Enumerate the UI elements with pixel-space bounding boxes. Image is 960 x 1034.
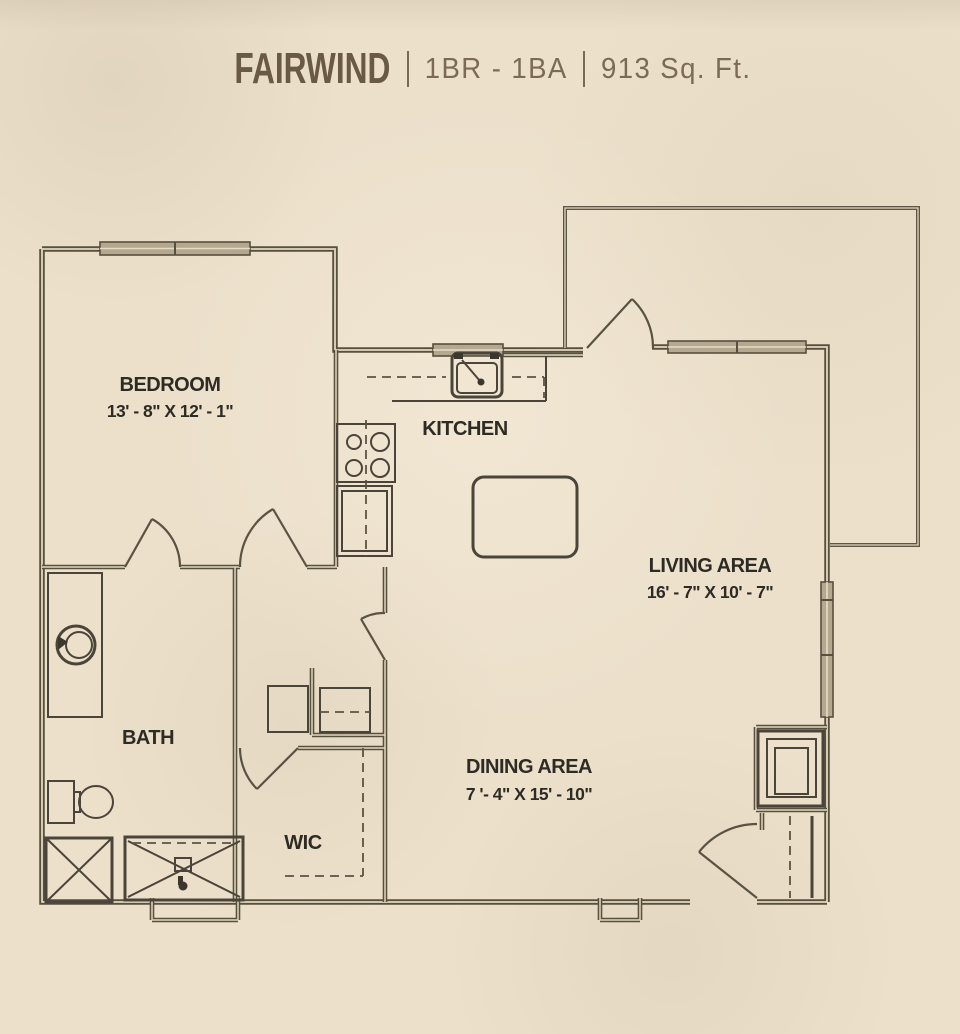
living-right-window — [821, 582, 833, 717]
room-dining: DINING AREA 7 '- 4" X 15' - 10" — [466, 756, 593, 804]
dining-label: DINING AREA — [466, 756, 592, 778]
utility-cabinets — [268, 686, 370, 732]
bath-label: BATH — [122, 727, 174, 749]
shower-icon — [125, 837, 243, 900]
refrigerator-icon — [337, 486, 392, 556]
room-wic: WIC — [284, 832, 321, 854]
entry-door — [699, 824, 757, 898]
bedroom-label: BEDROOM — [120, 374, 221, 396]
wic-door — [240, 748, 298, 789]
entry-closet — [790, 816, 812, 898]
toilet-icon — [48, 781, 113, 823]
room-living: LIVING AREA 16' - 7" X 10' - 7" — [647, 555, 774, 602]
kitchen-sink-icon — [452, 353, 502, 397]
bedroom-dims: 13' - 8" X 12' - 1" — [107, 401, 234, 421]
hall-door — [240, 509, 307, 567]
living-top-window — [668, 341, 806, 353]
storage-closet-icon — [46, 838, 112, 902]
bath-vanity — [48, 573, 102, 717]
bedroom-window — [100, 242, 250, 255]
kitchen-label: KITCHEN — [422, 418, 507, 440]
kitchen-island — [473, 477, 577, 557]
wic-label: WIC — [284, 832, 321, 854]
dining-hall-door — [361, 613, 385, 660]
room-kitchen: KITCHEN — [422, 418, 507, 440]
balcony-walls — [565, 208, 918, 545]
living-dims: 16' - 7" X 10' - 7" — [647, 582, 774, 602]
room-bath: BATH — [122, 727, 174, 749]
floorplan-page: { "header": { "plan_name": "FAIRWIND", "… — [0, 0, 960, 1034]
pantry-cabinet — [758, 731, 823, 806]
living-label: LIVING AREA — [649, 555, 772, 577]
wic-shelf-dashes — [285, 748, 363, 876]
dining-dims: 7 '- 4" X 15' - 10" — [466, 784, 593, 804]
floorplan-drawing: BEDROOM 13' - 8" X 12' - 1" KITCHEN LIVI… — [0, 0, 960, 1034]
bedroom-door — [125, 519, 180, 567]
room-bedroom: BEDROOM 13' - 8" X 12' - 1" — [107, 374, 234, 421]
balcony-door — [587, 299, 653, 348]
